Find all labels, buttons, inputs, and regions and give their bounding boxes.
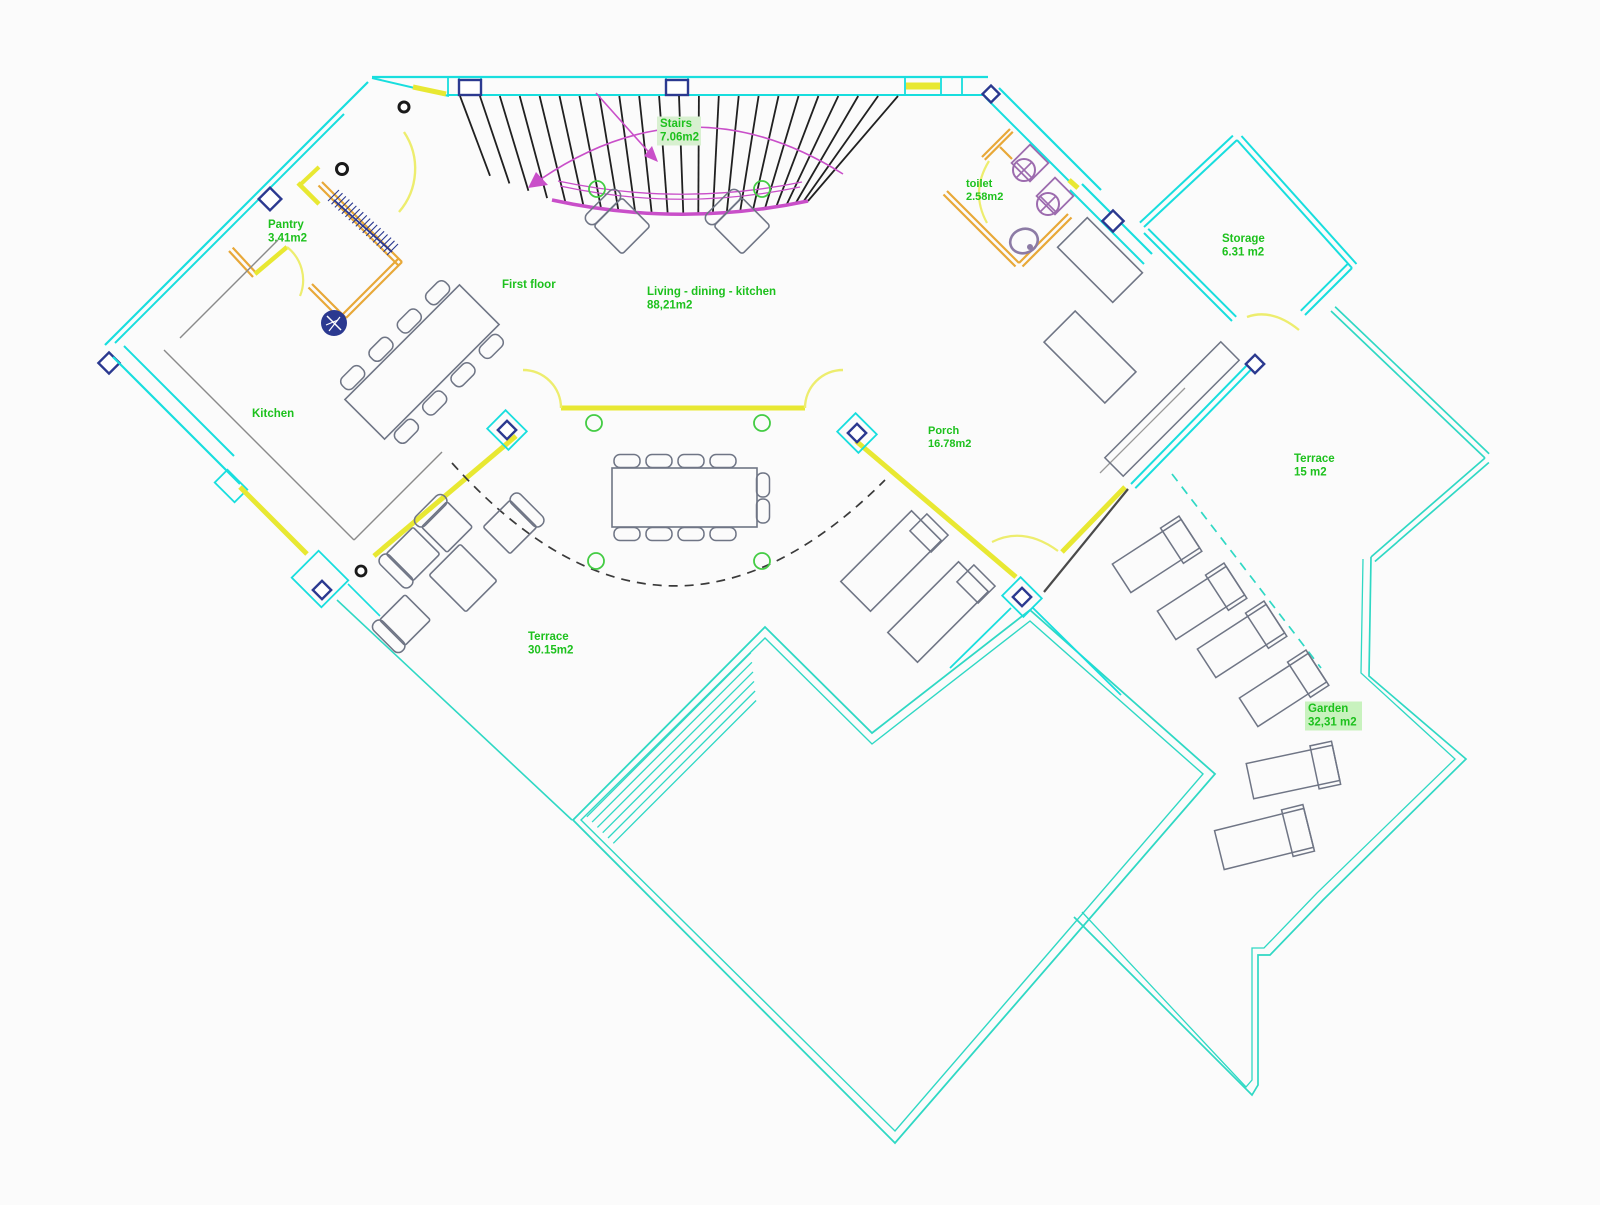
svg-text:2.58m2: 2.58m2	[966, 191, 1003, 203]
svg-text:Living - dining - kitchen: Living - dining - kitchen	[647, 286, 776, 298]
svg-text:6.31 m2: 6.31 m2	[1222, 247, 1264, 259]
svg-text:7.06m2: 7.06m2	[660, 132, 699, 144]
svg-text:Porch: Porch	[928, 425, 959, 437]
svg-text:Terrace: Terrace	[1294, 453, 1335, 465]
svg-text:Terrace: Terrace	[528, 631, 569, 643]
svg-text:3.41m2: 3.41m2	[268, 233, 307, 245]
svg-text:toilet: toilet	[966, 178, 993, 190]
svg-text:88,21m2: 88,21m2	[647, 300, 692, 312]
svg-text:30.15m2: 30.15m2	[528, 645, 573, 657]
svg-text:Stairs: Stairs	[660, 118, 692, 130]
svg-text:Pantry: Pantry	[268, 219, 304, 231]
svg-text:First floor: First floor	[502, 279, 556, 291]
svg-text:16.78m2: 16.78m2	[928, 438, 971, 450]
svg-text:Garden: Garden	[1308, 703, 1348, 715]
svg-text:32,31 m2: 32,31 m2	[1308, 717, 1357, 729]
svg-text:Kitchen: Kitchen	[252, 408, 294, 420]
svg-text:Storage: Storage	[1222, 233, 1265, 245]
svg-text:15 m2: 15 m2	[1294, 467, 1327, 479]
